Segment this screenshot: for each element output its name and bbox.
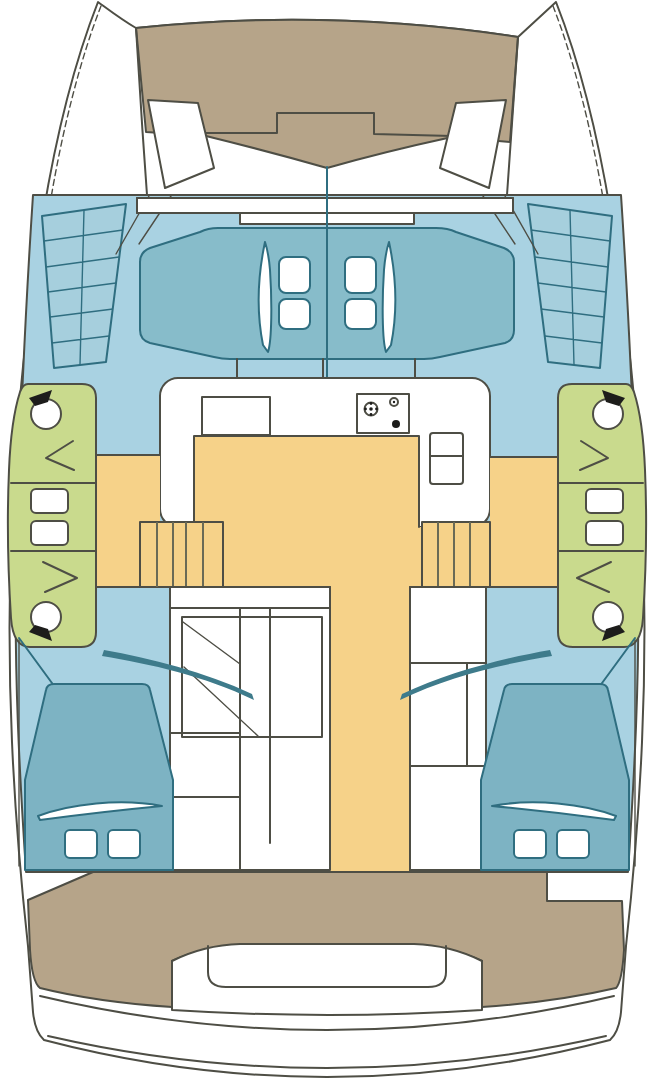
- cockpit-bench: [172, 944, 482, 1015]
- floor-plan: [0, 0, 654, 1080]
- pillow: [65, 830, 97, 858]
- washbasin: [31, 521, 68, 545]
- washbasin: [586, 489, 623, 513]
- stove-burner-center: [369, 407, 373, 411]
- deck-hatch: [279, 299, 310, 329]
- fridge: [430, 433, 463, 484]
- sink-unit: [202, 397, 270, 435]
- deck-hatch: [345, 257, 376, 293]
- hull-interior-starboard: [410, 587, 486, 870]
- stairs-starboard: [422, 522, 490, 587]
- hull-interior-port: [170, 587, 330, 870]
- pillow: [557, 830, 589, 858]
- berth-port-aft: [25, 684, 173, 870]
- stairs-port: [140, 522, 223, 587]
- pillow: [514, 830, 546, 858]
- stove-knob: [392, 420, 400, 428]
- deck-hatch: [345, 299, 376, 329]
- berth-starboard-aft: [481, 684, 629, 870]
- pillow: [108, 830, 140, 858]
- head-starboard: [558, 384, 646, 647]
- washbasin: [586, 521, 623, 545]
- washbasin: [31, 489, 68, 513]
- page: [0, 0, 654, 1080]
- deck-hatch: [279, 257, 310, 293]
- head-port: [8, 384, 96, 647]
- stove: [357, 394, 409, 433]
